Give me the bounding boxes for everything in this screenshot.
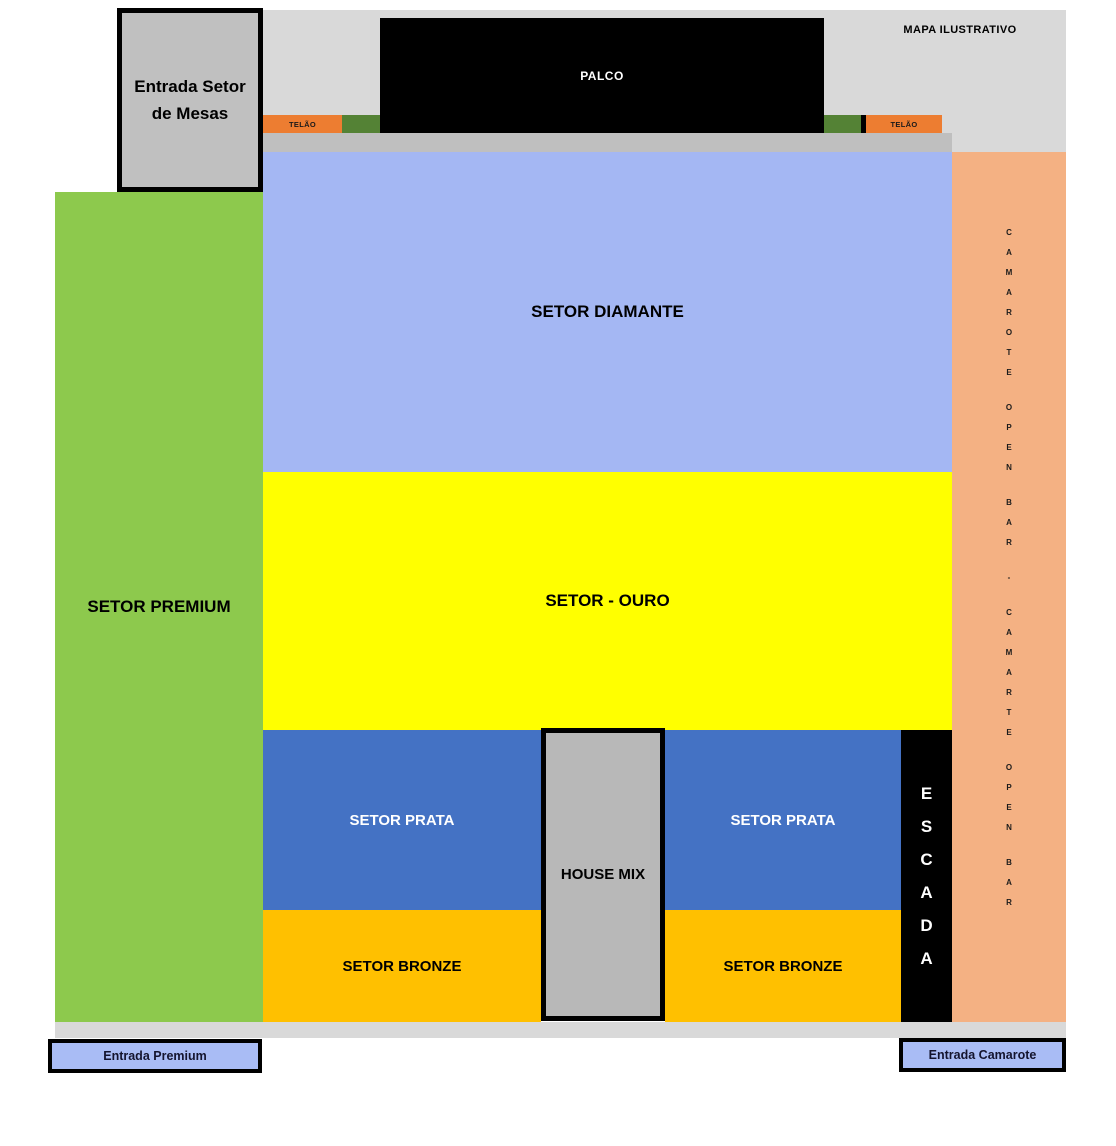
sector-diamante-label: SETOR DIAMANTE — [531, 302, 684, 322]
front-stage-walkway — [263, 133, 952, 152]
house-mix-booth: HOUSE MIX — [541, 728, 665, 1021]
camarote-open-bar-column: CAMAROTEOPENBAR-CAMARTEOPENBAR — [952, 152, 1066, 1022]
sector-diamante: SETOR DIAMANTE — [263, 152, 952, 472]
sector-bronze-left: SETOR BRONZE — [263, 910, 541, 1022]
telao-left-label: TELÃO — [289, 120, 316, 129]
side-panel-right — [824, 115, 861, 133]
sector-bronze-right-label: SETOR BRONZE — [724, 958, 843, 975]
telao-right-label: TELÃO — [891, 120, 918, 129]
house-mix-label: HOUSE MIX — [561, 866, 645, 883]
entrance-setor-de-mesas: Entrada Setor de Mesas — [117, 8, 263, 192]
sector-premium-label: SETOR PREMIUM — [87, 597, 230, 617]
entrance-premium-label: Entrada Premium — [103, 1049, 207, 1063]
sector-ouro-label: SETOR - OURO — [545, 591, 669, 611]
bottom-walkway — [55, 1022, 1066, 1038]
sector-prata-right-label: SETOR PRATA — [730, 812, 835, 829]
sector-bronze-left-label: SETOR BRONZE — [343, 958, 462, 975]
venue-map: MAPA ILUSTRATIVO TELÃO PALCO TELÃO SETOR… — [0, 0, 1116, 1146]
sector-prata-left: SETOR PRATA — [263, 730, 541, 910]
sector-prata-right: SETOR PRATA — [665, 730, 901, 910]
entrance-premium: Entrada Premium — [48, 1039, 262, 1073]
sector-bronze-right: SETOR BRONZE — [665, 910, 901, 1022]
sector-prata-left-label: SETOR PRATA — [349, 812, 454, 829]
map-disclaimer-note: MAPA ILUSTRATIVO — [880, 22, 1040, 38]
entrance-setor-de-mesas-label: Entrada Setor de Mesas — [130, 73, 250, 127]
stairs-escada: ESCADA — [901, 730, 952, 1022]
side-panel-left — [342, 115, 380, 133]
stage-label: PALCO — [580, 69, 624, 83]
telao-left-screen: TELÃO — [263, 115, 342, 133]
sector-ouro: SETOR - OURO — [263, 472, 952, 730]
entrance-camarote: Entrada Camarote — [899, 1038, 1066, 1072]
sector-premium: SETOR PREMIUM — [55, 192, 263, 1022]
telao-right-screen: TELÃO — [866, 115, 942, 133]
entrance-camarote-label: Entrada Camarote — [929, 1048, 1037, 1062]
stage: PALCO — [380, 18, 824, 133]
